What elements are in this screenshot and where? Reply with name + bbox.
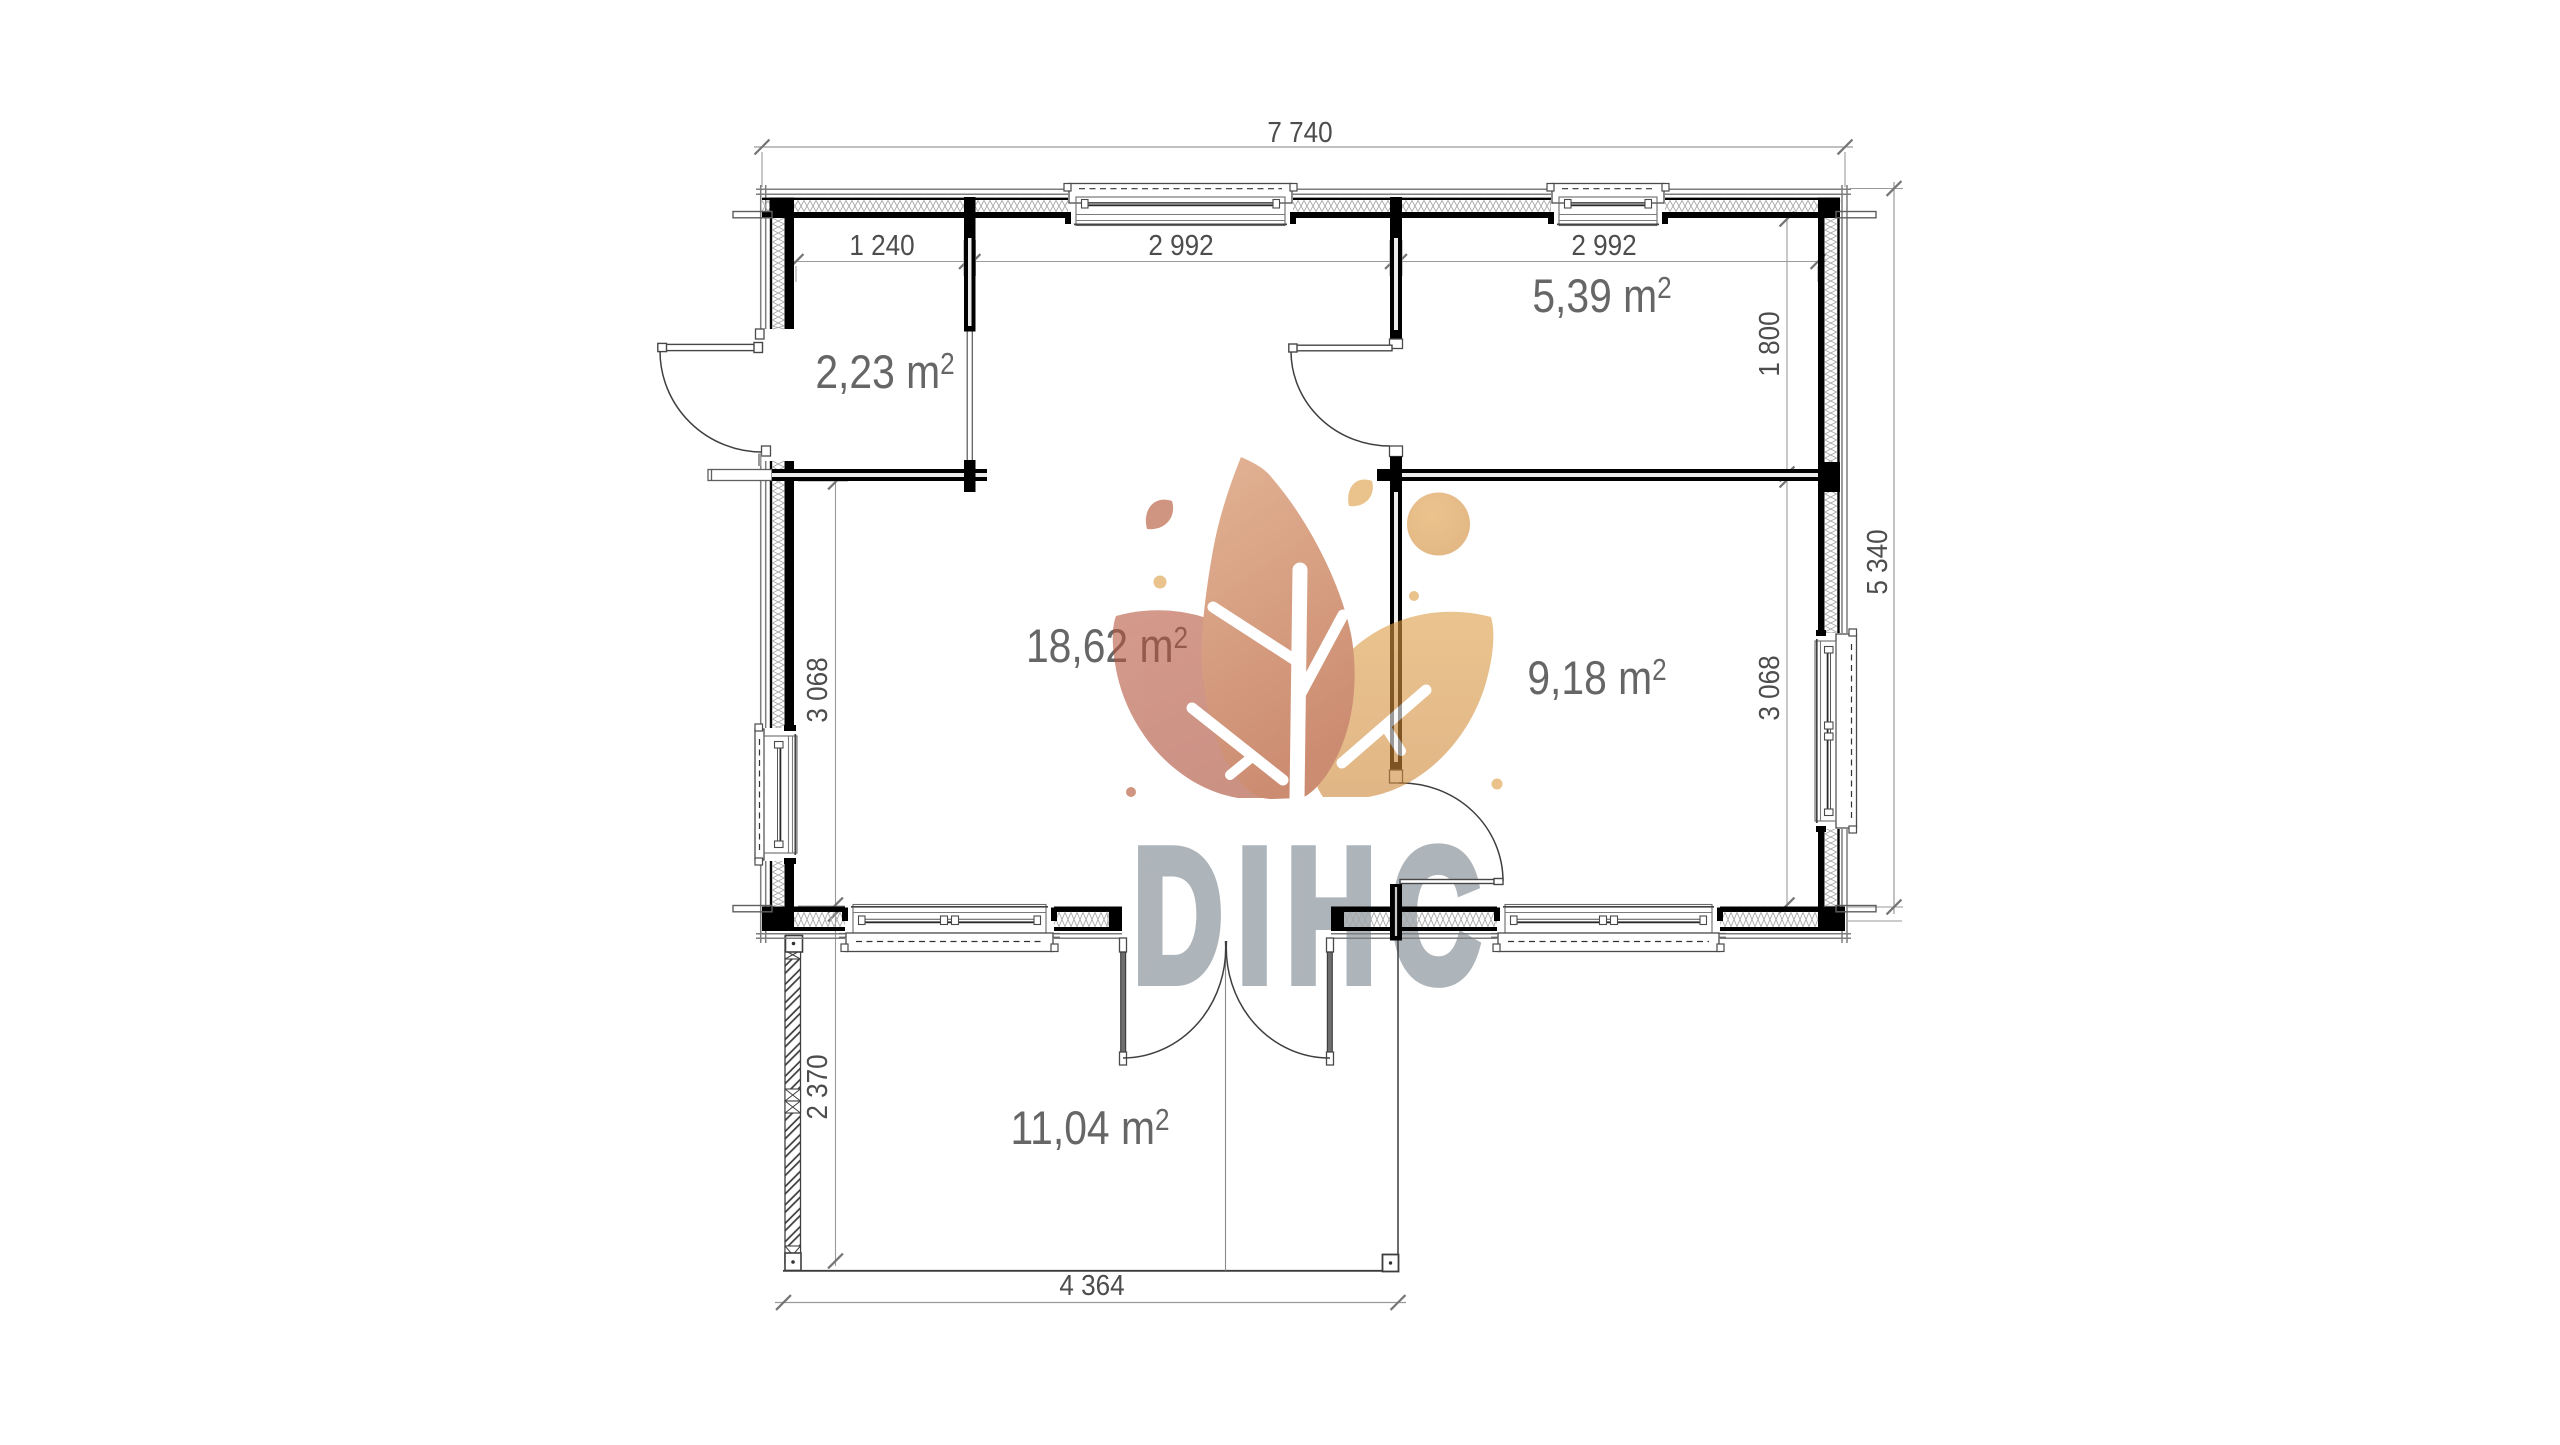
svg-text:2 992: 2 992 [1571, 229, 1636, 262]
svg-text:2,23 m2: 2,23 m2 [815, 346, 954, 399]
svg-text:DIHC: DIHC [1133, 811, 1495, 1023]
svg-text:4 364: 4 364 [1059, 1269, 1124, 1302]
svg-text:1 800: 1 800 [1753, 311, 1786, 376]
svg-text:11,04 m2: 11,04 m2 [1010, 1102, 1169, 1155]
svg-text:9,18 m2: 9,18 m2 [1527, 652, 1666, 705]
svg-text:5 340: 5 340 [1861, 529, 1894, 594]
svg-text:3 068: 3 068 [801, 657, 834, 722]
svg-text:2 992: 2 992 [1148, 229, 1213, 262]
svg-text:2 370: 2 370 [801, 1054, 834, 1119]
svg-text:5,39 m2: 5,39 m2 [1532, 270, 1671, 323]
svg-text:1 240: 1 240 [849, 229, 914, 262]
svg-text:7 740: 7 740 [1267, 116, 1332, 149]
svg-text:3 068: 3 068 [1753, 655, 1786, 720]
